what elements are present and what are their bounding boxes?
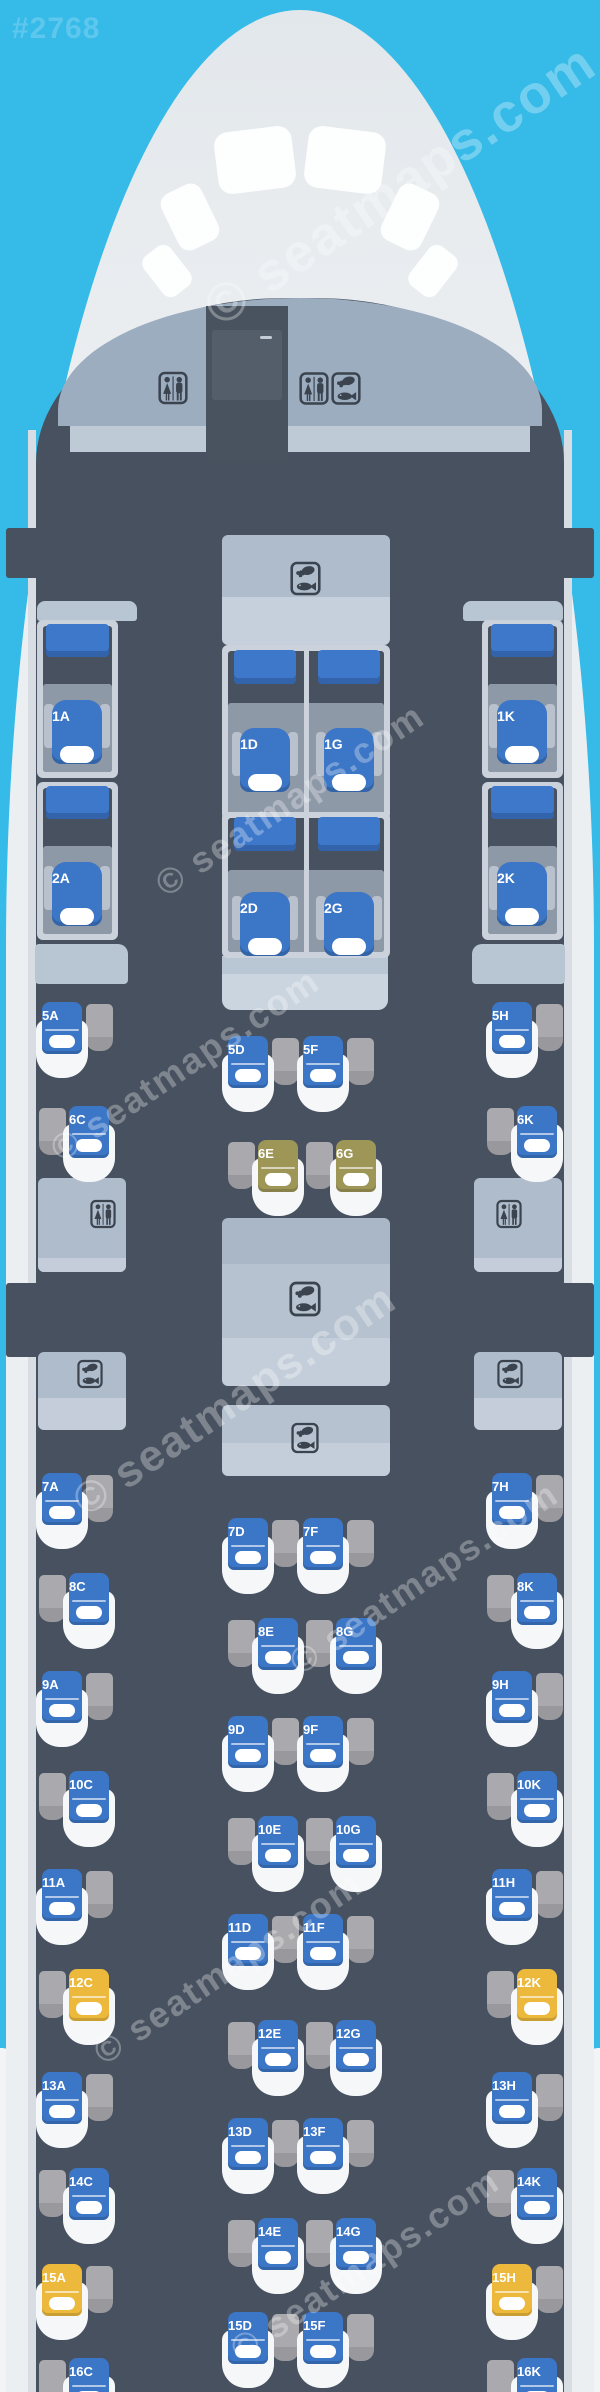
seat-pillow — [235, 2345, 261, 2358]
seat-11D[interactable]: 11D — [228, 1914, 268, 1966]
seat-15D[interactable]: 15D — [228, 2312, 268, 2364]
seat-pillow — [265, 2053, 291, 2066]
side-table — [86, 2074, 113, 2121]
seat-label: 13H — [492, 2078, 516, 2093]
seat-label: 1D — [240, 736, 258, 752]
seat-8E[interactable]: 8E — [258, 1618, 298, 1670]
seat-7A[interactable]: 7A — [42, 1473, 82, 1525]
seat-label: 13A — [42, 2078, 66, 2093]
seat-12C[interactable]: 12C — [69, 1969, 109, 2021]
seat-14C[interactable]: 14C — [69, 2168, 109, 2220]
seat-6E[interactable]: 6E — [258, 1140, 298, 1192]
side-table — [306, 1620, 333, 1667]
seat-2K[interactable]: 2K — [497, 862, 547, 926]
seat-pillow — [505, 746, 539, 763]
side-table — [86, 1871, 113, 1918]
seat-pillow — [49, 2105, 75, 2118]
seat-label: 11A — [42, 1875, 65, 1890]
seat-label: 8E — [258, 1624, 274, 1639]
seat-pillow — [524, 1804, 550, 1817]
seat-2D[interactable]: 2D — [240, 892, 290, 956]
seat-label: 6G — [336, 1146, 353, 1161]
seat-label: 2G — [324, 900, 343, 916]
seat-label: 12K — [517, 1975, 541, 1990]
seat-12K[interactable]: 12K — [517, 1969, 557, 2021]
side-table — [306, 2220, 333, 2267]
seat-label: 7F — [303, 1524, 318, 1539]
seat-pillow — [310, 1749, 336, 1762]
seat-13F[interactable]: 13F — [303, 2118, 343, 2170]
seat-pillow — [499, 2297, 525, 2310]
side-table — [86, 2266, 113, 2313]
seat-label: 5H — [492, 1008, 509, 1023]
seat-label: 12E — [258, 2026, 281, 2041]
seat-6K[interactable]: 6K — [517, 1106, 557, 1158]
suite-ottoman — [234, 817, 296, 851]
seat-label: 5A — [42, 1008, 59, 1023]
seat-pillow — [265, 1651, 291, 1664]
seat-11H[interactable]: 11H — [492, 1869, 532, 1921]
seat-label: 15A — [42, 2270, 66, 2285]
seat-label: 7H — [492, 1479, 509, 1494]
seat-5H[interactable]: 5H — [492, 1002, 532, 1054]
side-table — [347, 1916, 374, 1963]
seat-pillow — [343, 2251, 369, 2264]
seat-label: 8K — [517, 1579, 534, 1594]
seat-label: 2K — [497, 870, 515, 886]
seat-pillow — [310, 2345, 336, 2358]
side-table — [272, 2120, 299, 2167]
side-table — [228, 1620, 255, 1667]
seat-label: 9A — [42, 1677, 59, 1692]
seat-pillow — [499, 1035, 525, 1048]
seat-label: 12G — [336, 2026, 361, 2041]
side-table — [347, 1520, 374, 1567]
seat-6G[interactable]: 6G — [336, 1140, 376, 1192]
seat-11F[interactable]: 11F — [303, 1914, 343, 1966]
seat-10K[interactable]: 10K — [517, 1771, 557, 1823]
seat-7F[interactable]: 7F — [303, 1518, 343, 1570]
seat-7H[interactable]: 7H — [492, 1473, 532, 1525]
seat-pillow — [76, 1804, 102, 1817]
seat-pillow — [235, 1069, 261, 1082]
suite-ottoman — [491, 786, 554, 819]
side-table — [536, 2266, 563, 2313]
side-table — [487, 1108, 514, 1155]
seat-2G[interactable]: 2G — [324, 892, 374, 956]
seat-pillow — [235, 1749, 261, 1762]
side-table — [487, 2170, 514, 2217]
seat-label: 15H — [492, 2270, 516, 2285]
suite-divider — [304, 651, 309, 814]
seat-pillow — [332, 774, 366, 791]
seat-pillow — [60, 908, 94, 925]
side-table — [487, 1971, 514, 2018]
side-table — [272, 2314, 299, 2361]
seat-pillow — [310, 1069, 336, 1082]
side-table — [536, 1673, 563, 1720]
seat-label: 10E — [258, 1822, 281, 1837]
seat-16K[interactable]: 16K — [517, 2358, 557, 2392]
seat-8K[interactable]: 8K — [517, 1573, 557, 1625]
seat-15H[interactable]: 15H — [492, 2264, 532, 2316]
suite-ottoman — [234, 650, 296, 684]
suite-ottoman — [46, 786, 109, 819]
seat-pillow — [343, 2053, 369, 2066]
seat-pillow — [265, 1173, 291, 1186]
seat-1G[interactable]: 1G — [324, 728, 374, 792]
seat-pillow — [499, 2105, 525, 2118]
seat-label: 13F — [303, 2124, 325, 2139]
seat-label: 5F — [303, 1042, 318, 1057]
seat-pillow — [265, 1849, 291, 1862]
side-table — [39, 1575, 66, 1622]
seat-8C[interactable]: 8C — [69, 1573, 109, 1625]
seat-label: 11F — [303, 1920, 325, 1935]
seat-label: 13D — [228, 2124, 252, 2139]
seat-label: 6C — [69, 1112, 86, 1127]
seat-pillow — [265, 2251, 291, 2264]
side-table — [272, 1916, 299, 1963]
seat-pillow — [235, 1551, 261, 1564]
seatmap: #2768 — [0, 0, 600, 2392]
seat-13H[interactable]: 13H — [492, 2072, 532, 2124]
seat-label: 11H — [492, 1875, 515, 1890]
seat-pillow — [76, 2201, 102, 2214]
seat-label: 10K — [517, 1777, 541, 1792]
seat-15F[interactable]: 15F — [303, 2312, 343, 2364]
seat-label: 14G — [336, 2224, 361, 2239]
seat-pillow — [332, 938, 366, 955]
seat-pillow — [343, 1849, 369, 1862]
seat-pillow — [76, 1139, 102, 1152]
side-table — [536, 1871, 563, 1918]
seat-label: 8C — [69, 1579, 86, 1594]
seat-label: 16K — [517, 2364, 541, 2379]
seat-pillow — [248, 774, 282, 791]
seat-label: 12C — [69, 1975, 93, 1990]
seat-pillow — [499, 1704, 525, 1717]
seat-label: 15F — [303, 2318, 325, 2333]
seat-label: 16C — [69, 2364, 93, 2379]
seat-15A[interactable]: 15A — [42, 2264, 82, 2316]
side-table — [487, 1773, 514, 1820]
seat-label: 14K — [517, 2174, 541, 2189]
seat-label: 5D — [228, 1042, 245, 1057]
side-table — [347, 2314, 374, 2361]
seat-label: 7D — [228, 1524, 245, 1539]
seat-8G[interactable]: 8G — [336, 1618, 376, 1670]
seat-label: 10G — [336, 1822, 361, 1837]
seat-pillow — [524, 1606, 550, 1619]
side-table — [39, 2170, 66, 2217]
seat-pillow — [49, 2297, 75, 2310]
seat-label: 9D — [228, 1722, 245, 1737]
suite-ottoman — [46, 624, 109, 657]
side-table — [228, 1142, 255, 1189]
seat-5A[interactable]: 5A — [42, 1002, 82, 1054]
seats-layer: 5A5D5F5H6C6E6G6K7A7D7F7H8C8E8G8K9A9D9F9H… — [0, 0, 600, 2392]
side-table — [306, 2022, 333, 2069]
seat-14K[interactable]: 14K — [517, 2168, 557, 2220]
seat-7D[interactable]: 7D — [228, 1518, 268, 1570]
seat-5D[interactable]: 5D — [228, 1036, 268, 1088]
seat-pillow — [310, 1551, 336, 1564]
seat-pillow — [49, 1704, 75, 1717]
side-table — [228, 2022, 255, 2069]
seat-1D[interactable]: 1D — [240, 728, 290, 792]
side-table — [228, 1818, 255, 1865]
seat-label: 14C — [69, 2174, 93, 2189]
side-table — [39, 1971, 66, 2018]
seat-1K[interactable]: 1K — [497, 700, 547, 764]
seat-pillow — [76, 2002, 102, 2015]
seat-1A[interactable]: 1A — [52, 700, 102, 764]
seat-pillow — [524, 2002, 550, 2015]
seat-pillow — [499, 1506, 525, 1519]
side-table — [487, 1575, 514, 1622]
seat-pillow — [310, 1947, 336, 1960]
seat-9H[interactable]: 9H — [492, 1671, 532, 1723]
side-table — [86, 1004, 113, 1051]
seat-16C[interactable]: 16C — [69, 2358, 109, 2392]
seat-label: 6K — [517, 1112, 534, 1127]
side-table — [39, 2360, 66, 2392]
suite-ottoman — [318, 650, 380, 684]
seat-pillow — [49, 1902, 75, 1915]
seat-pillow — [76, 1606, 102, 1619]
side-table — [487, 2360, 514, 2392]
seat-label: 9H — [492, 1677, 509, 1692]
side-table — [228, 2220, 255, 2267]
side-table — [536, 1475, 563, 1522]
seat-label: 8G — [336, 1624, 353, 1639]
suite-divider — [304, 818, 309, 952]
seat-pillow — [343, 1651, 369, 1664]
seat-label: 2D — [240, 900, 258, 916]
seat-13D[interactable]: 13D — [228, 2118, 268, 2170]
seat-pillow — [524, 2201, 550, 2214]
seat-label: 15D — [228, 2318, 252, 2333]
side-table — [347, 1718, 374, 1765]
seat-12E[interactable]: 12E — [258, 2020, 298, 2072]
side-table — [86, 1475, 113, 1522]
seat-2A[interactable]: 2A — [52, 862, 102, 926]
seat-9F[interactable]: 9F — [303, 1716, 343, 1768]
seat-5F[interactable]: 5F — [303, 1036, 343, 1088]
side-table — [536, 2074, 563, 2121]
seat-14E[interactable]: 14E — [258, 2218, 298, 2270]
side-table — [272, 1038, 299, 1085]
side-table — [272, 1520, 299, 1567]
seat-label: 7A — [42, 1479, 59, 1494]
seat-10C[interactable]: 10C — [69, 1771, 109, 1823]
seat-9D[interactable]: 9D — [228, 1716, 268, 1768]
seat-label: 14E — [258, 2224, 281, 2239]
seat-10G[interactable]: 10G — [336, 1816, 376, 1868]
side-table — [536, 1004, 563, 1051]
seat-pillow — [499, 1902, 525, 1915]
seat-label: 10C — [69, 1777, 93, 1792]
side-table — [347, 1038, 374, 1085]
seat-pillow — [310, 2151, 336, 2164]
seat-label: 11D — [228, 1920, 251, 1935]
seat-label: 1K — [497, 708, 515, 724]
side-table — [347, 2120, 374, 2167]
seat-13A[interactable]: 13A — [42, 2072, 82, 2124]
seat-pillow — [60, 746, 94, 763]
seat-label: 2A — [52, 870, 70, 886]
side-table — [39, 1108, 66, 1155]
seat-pillow — [49, 1506, 75, 1519]
seat-9A[interactable]: 9A — [42, 1671, 82, 1723]
seat-pillow — [505, 908, 539, 925]
seat-label: 6E — [258, 1146, 274, 1161]
seat-label: 1A — [52, 708, 70, 724]
side-table — [306, 1142, 333, 1189]
suite-ottoman — [491, 624, 554, 657]
seat-pillow — [235, 1947, 261, 1960]
side-table — [272, 1718, 299, 1765]
seat-pillow — [343, 1173, 369, 1186]
seat-pillow — [235, 2151, 261, 2164]
side-table — [86, 1673, 113, 1720]
suite-ottoman — [318, 817, 380, 851]
seat-14G[interactable]: 14G — [336, 2218, 376, 2270]
seat-pillow — [524, 1139, 550, 1152]
seat-label: 9F — [303, 1722, 318, 1737]
seat-6C[interactable]: 6C — [69, 1106, 109, 1158]
side-table — [39, 1773, 66, 1820]
seat-pillow — [248, 938, 282, 955]
seat-pillow — [49, 1035, 75, 1048]
seat-12G[interactable]: 12G — [336, 2020, 376, 2072]
side-table — [306, 1818, 333, 1865]
seat-11A[interactable]: 11A — [42, 1869, 82, 1921]
seat-label: 1G — [324, 736, 343, 752]
seat-10E[interactable]: 10E — [258, 1816, 298, 1868]
